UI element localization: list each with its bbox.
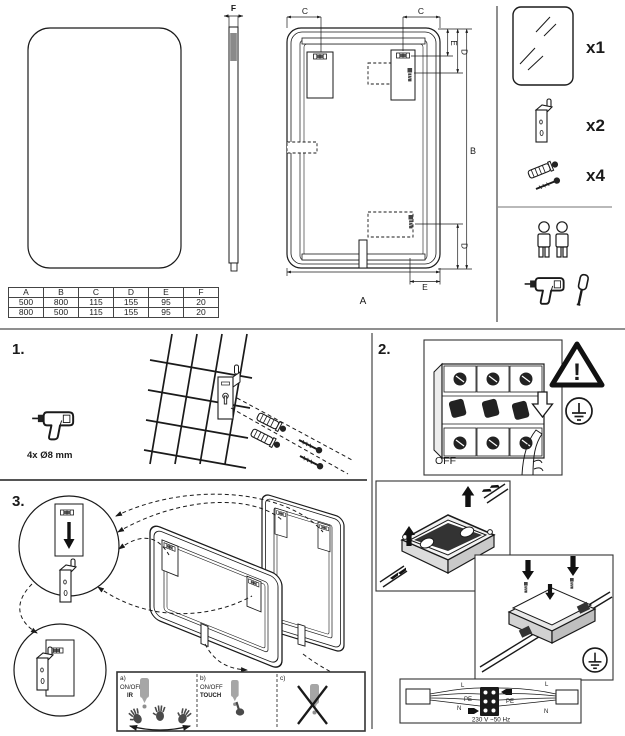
table-cell: 500	[44, 308, 79, 318]
bottom-support-tab	[359, 240, 367, 268]
panel-b-type: TOUCH	[200, 693, 221, 699]
table-cell: 20	[184, 308, 219, 318]
fixings-qty-label: x4	[586, 166, 605, 185]
drill-icon	[32, 412, 73, 439]
detail-circle-hung	[14, 624, 106, 716]
dim-label-d-top: D	[460, 49, 469, 55]
table-cell: 115	[79, 298, 114, 308]
guide-line	[231, 408, 348, 474]
screw-icon	[298, 437, 324, 454]
dim-label-c-right: C	[418, 6, 424, 16]
dim-label-e-top: E	[449, 40, 458, 45]
table-cell: 155	[114, 308, 149, 318]
step3-number: 3.	[12, 493, 25, 510]
table-cell: 95	[149, 308, 184, 318]
protective-earth-icon	[566, 398, 592, 424]
dim-label-a: A	[360, 296, 367, 307]
step2-number: 2.	[378, 341, 391, 358]
cover-screw	[570, 578, 574, 589]
panel-a-mode: ON/OFF	[120, 685, 143, 691]
table-row: 500 800 115 155 95 20	[9, 298, 219, 308]
junction-box-closed	[475, 555, 613, 680]
step3-mounting: 3.	[0, 482, 372, 736]
panel-a-key: a)	[120, 675, 126, 682]
panel-b-mode: ON/OFF	[200, 685, 223, 691]
dim-label-f: F	[231, 3, 236, 13]
detail-circle-hook	[19, 496, 119, 602]
table-cell: 800	[9, 308, 44, 318]
terminal-block	[480, 687, 499, 716]
wall-plug-icon	[527, 159, 559, 180]
table-header: E	[149, 288, 184, 298]
wall-grid	[144, 334, 252, 468]
cable-left	[406, 689, 430, 704]
wire-label-n-left: N	[457, 706, 461, 712]
table-cell: 115	[79, 308, 114, 318]
table-cell: 95	[149, 298, 184, 308]
dim-label-c-left: C	[302, 6, 308, 16]
voltage-label: 230 V ~50 Hz	[472, 717, 510, 724]
table-cell: 500	[9, 298, 44, 308]
table-cell: 20	[184, 298, 219, 308]
table-cell: 800	[44, 298, 79, 308]
dim-label-d-bottom: D	[460, 243, 469, 249]
screwdriver-icon	[575, 274, 589, 305]
wiring-diagram: L PE N L PE N 230 V ~50 Hz	[400, 679, 581, 724]
table-row: 800 500 115 155 95 20	[9, 308, 219, 318]
cable-right	[556, 690, 578, 704]
mirror-side-view: F	[210, 0, 265, 290]
person-icon	[538, 222, 550, 257]
parts-list: x1 x2 x4	[498, 0, 625, 326]
screw-icon	[299, 453, 325, 470]
wire-label-n-right: N	[544, 709, 548, 715]
table-header: B	[44, 288, 79, 298]
side-profile	[229, 27, 238, 263]
table-header: F	[184, 288, 219, 298]
step2-electrical: 2. OFF !	[372, 332, 625, 736]
panel-b-key: b)	[200, 675, 206, 682]
screw-icon	[535, 176, 561, 192]
breaker-off-label: OFF	[435, 455, 456, 467]
dim-label-e-bottom: E	[422, 282, 428, 292]
dimension-table: A B C D E F 500 800 115 155 95 20 800 50…	[8, 287, 219, 318]
mirror-qty-label: x1	[586, 38, 605, 57]
table-header: A	[9, 288, 44, 298]
terminal-screw-top	[408, 68, 413, 81]
table-header: C	[79, 288, 114, 298]
step1-number: 1.	[12, 341, 25, 358]
table-header: D	[114, 288, 149, 298]
wire-label-pe-right: PE	[506, 699, 514, 705]
bracket-qty-label: x2	[586, 116, 605, 135]
hanger-plate-left	[307, 52, 333, 98]
table-cell: 155	[114, 298, 149, 308]
person-icon	[556, 222, 568, 257]
top-led-channel	[302, 38, 425, 44]
dim-label-b: B	[470, 146, 476, 156]
warning-exclamation: !	[573, 359, 581, 386]
terminal-screw-bottom	[409, 215, 414, 228]
step1-drilling: 1. 4x Ø8 mm	[0, 332, 372, 480]
instruction-sheet: F	[0, 0, 625, 736]
controls-box: a) ON/OFF IR b) ON/OFF TOUCH c)	[117, 672, 365, 731]
drill-icon	[525, 278, 564, 304]
side-profile-foot	[231, 263, 237, 271]
cable-exit-dashed	[287, 142, 317, 153]
breaker-panel: OFF	[424, 340, 562, 475]
bracket-part-icon	[536, 99, 552, 142]
wire-label-pe-left: PE	[464, 697, 472, 703]
mirror-front-view	[18, 18, 198, 280]
mirror-front-outline	[28, 28, 181, 268]
main-horizontal-divider	[0, 328, 625, 330]
mirror-part-icon	[513, 7, 573, 85]
panel-a-type: IR	[127, 693, 134, 699]
cover-screw	[524, 582, 528, 593]
side-profile-hanger	[230, 33, 237, 61]
drill-spec-label: 4x Ø8 mm	[27, 450, 72, 461]
mirror-back-view: C C E D B D E A	[278, 0, 495, 315]
panel-c-key: c)	[280, 675, 285, 682]
